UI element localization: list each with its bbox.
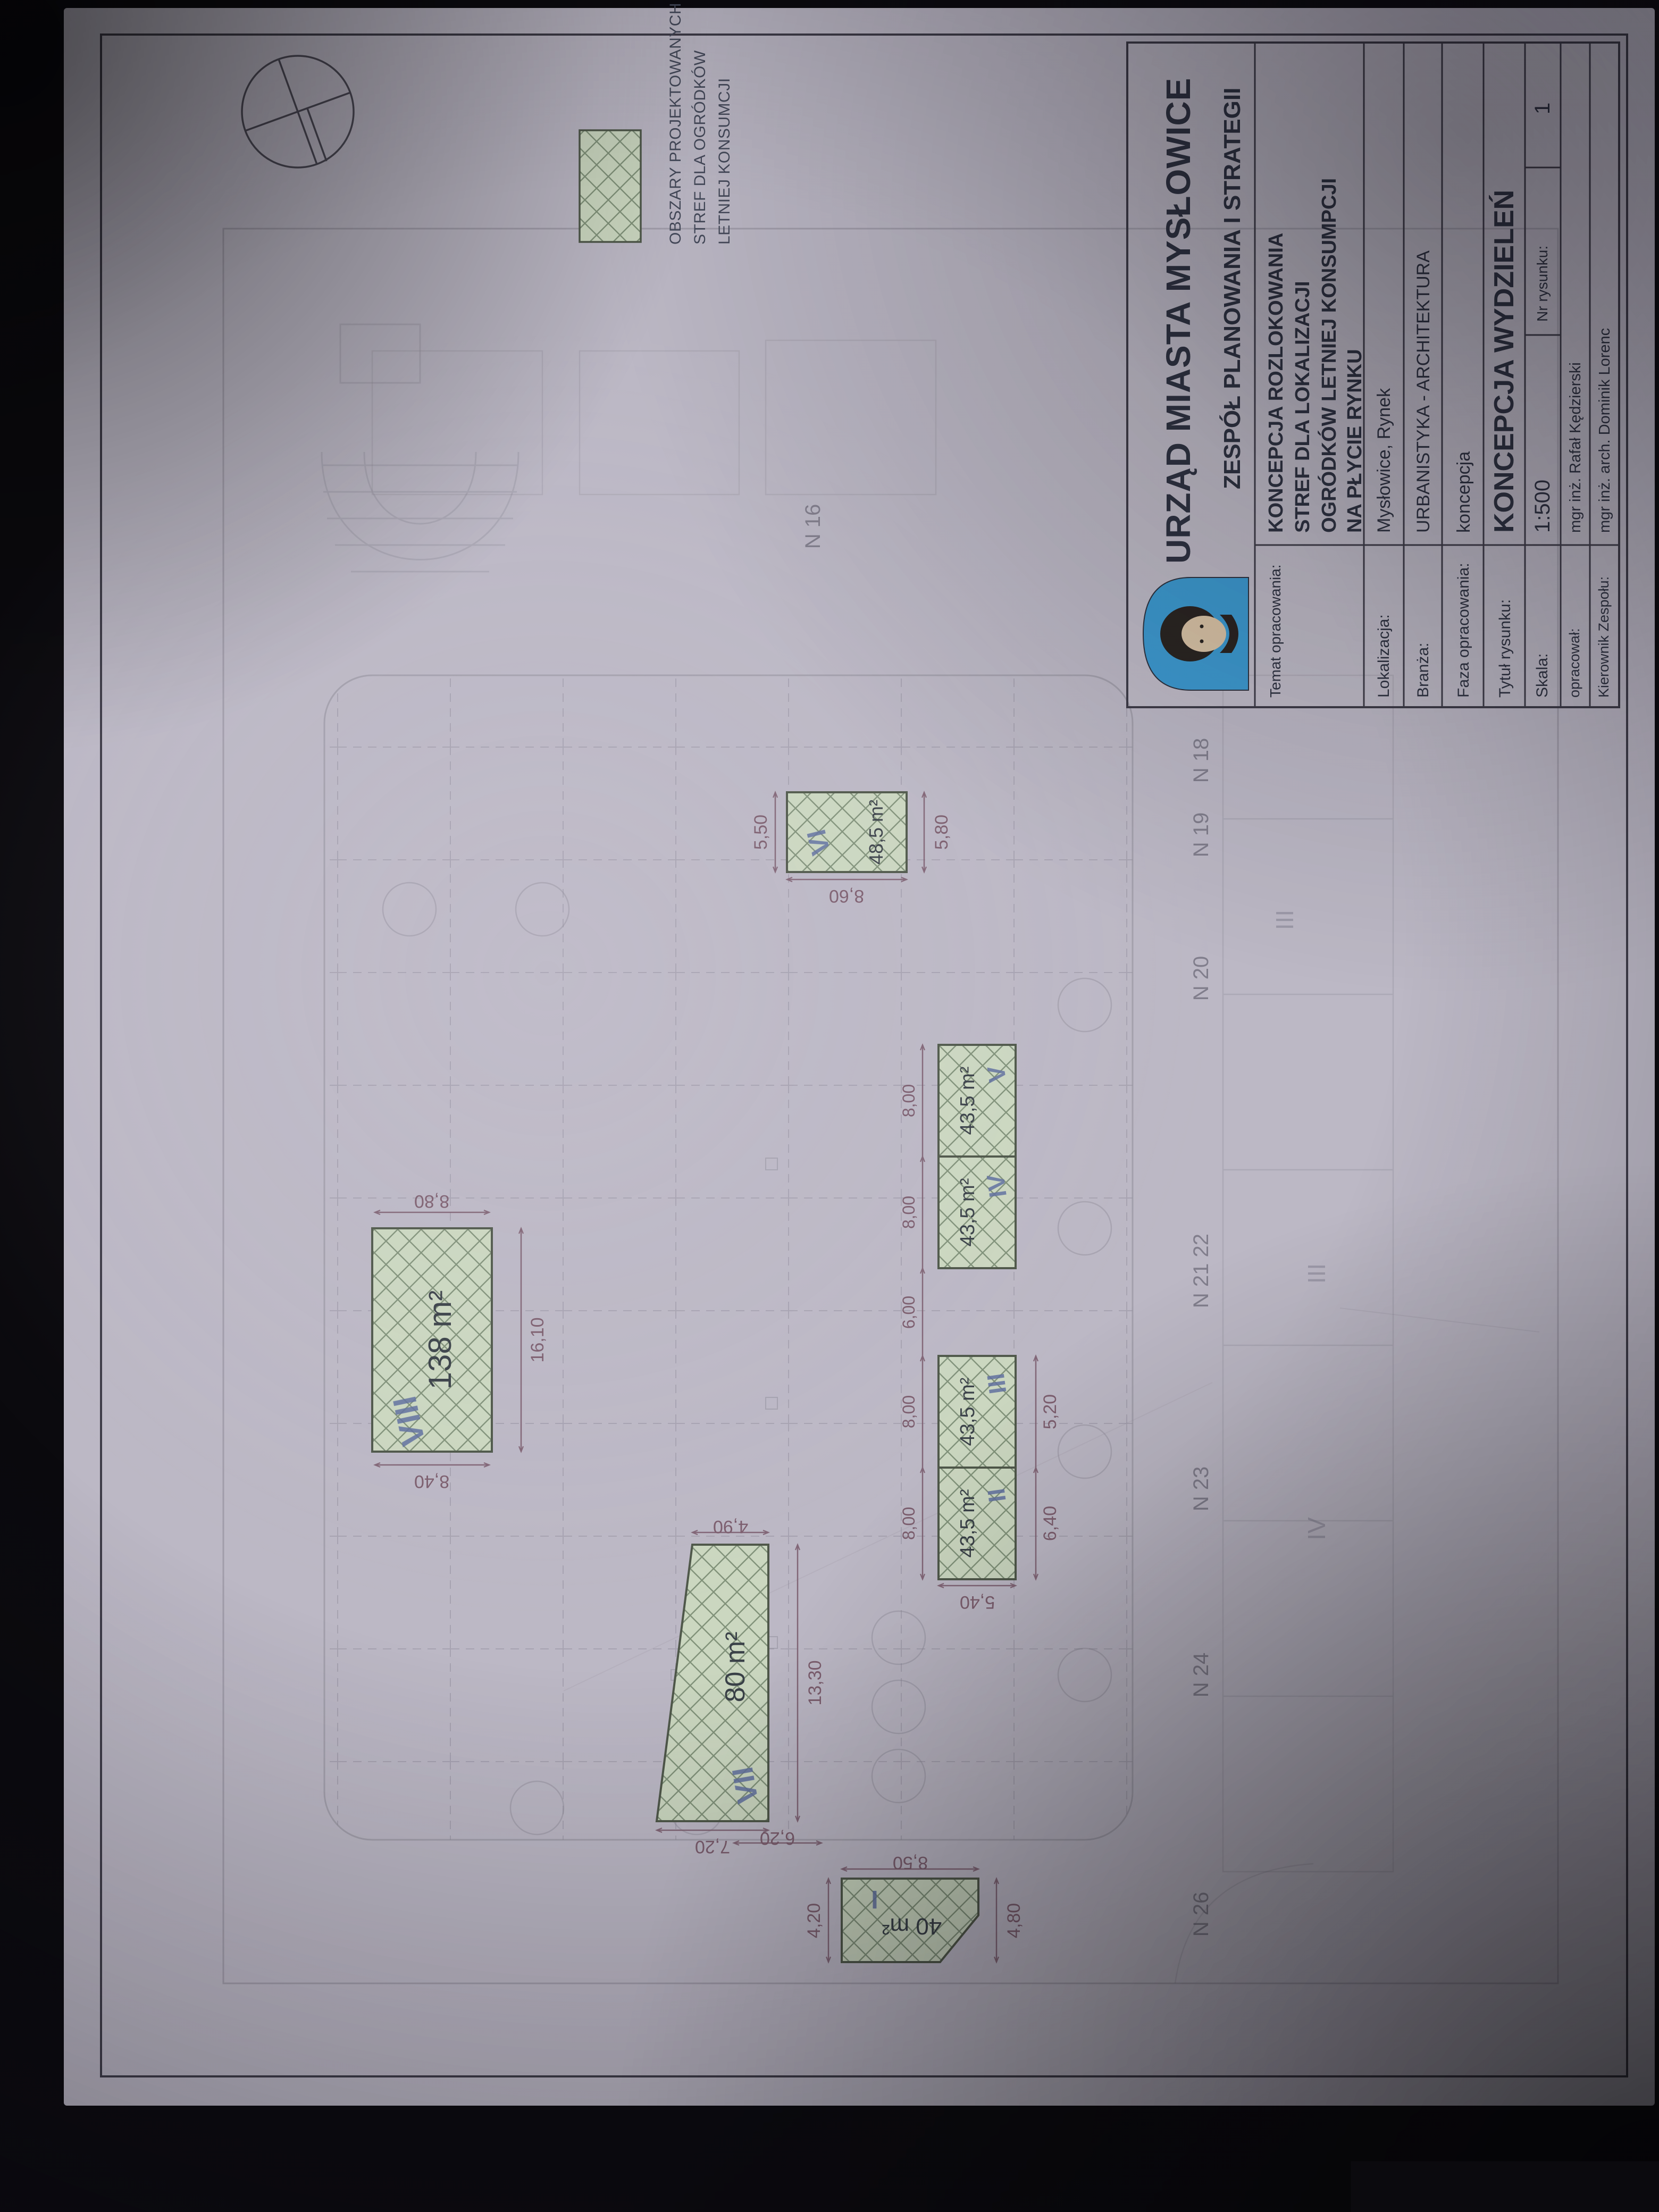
field-label: Faza opracowania: <box>1455 563 1472 698</box>
dim-label: 7,20 <box>695 1837 730 1857</box>
plot-label: N 23 <box>1189 1467 1213 1512</box>
dim-label: 8,00 <box>899 1507 918 1540</box>
dim-label: 4,80 <box>1004 1903 1024 1938</box>
dim-label: 16,10 <box>527 1317 548 1362</box>
subject-line: STREF DLA LOKALIZACJI <box>1292 281 1314 533</box>
faint-numeral: III <box>1303 1263 1330 1284</box>
dim-label: 4,20 <box>804 1903 824 1938</box>
zone-numeral: III <box>982 1372 1012 1396</box>
zone-area-label: 43,5 m² <box>957 1178 979 1247</box>
site-plan-drawing: N 26 N 24 N 23 N 21 22 N 20 N 19 N 18 N … <box>0 0 1659 2212</box>
legend-line: LETNIEJ KONSUMCJI <box>716 78 733 245</box>
subject-line: OGRÓDKÓW LETNIEJ KONSUMPCJI <box>1317 178 1340 533</box>
dim-label: 5,20 <box>1040 1394 1060 1429</box>
field-value: mgr inż. Rafał Kędzierski <box>1567 362 1584 533</box>
field-label: opracował: <box>1566 628 1582 698</box>
zone-area-label: 138 m² <box>422 1291 458 1390</box>
faint-numeral: III <box>1271 910 1298 930</box>
zone-area-label: 43,5 m² <box>957 1489 979 1558</box>
dim-label: 4,90 <box>713 1516 748 1537</box>
plot-label: N 18 <box>1189 738 1213 783</box>
dim-label: 6,20 <box>760 1828 795 1848</box>
dim-label: 8,00 <box>899 1084 918 1117</box>
field-value: URBANISTYKA - ARCHITEKTURA <box>1413 250 1434 533</box>
drawing-number: 1 <box>1531 103 1554 114</box>
field-label: Skala: <box>1534 653 1551 698</box>
field-value: koncepcja <box>1454 451 1474 533</box>
subject-line: NA PŁYCIE RYNKU <box>1344 349 1366 533</box>
plot-label: N 20 <box>1189 956 1213 1001</box>
dim-label: 5,80 <box>932 815 952 850</box>
dim-label: 8,00 <box>899 1196 918 1229</box>
plot-label: N 16 <box>801 504 825 549</box>
dim-label: 8,50 <box>893 1853 928 1873</box>
photographed-drawing: N 26 N 24 N 23 N 21 22 N 20 N 19 N 18 N … <box>0 0 1659 2212</box>
team-name: ZESPÓŁ PLANOWANIA I STRATEGII <box>1219 88 1245 489</box>
dim-label: 8,80 <box>414 1191 449 1211</box>
legend-line: OBSZARY PROJEKTOWANYCH <box>667 3 684 245</box>
dim-label: 6,40 <box>1040 1506 1060 1541</box>
rotated-drawing-canvas: N 26 N 24 N 23 N 21 22 N 20 N 19 N 18 N … <box>0 0 1659 2212</box>
dim-label: 6,00 <box>899 1296 918 1329</box>
zone-numeral: VII <box>725 1764 765 1806</box>
zone-area-label: 80 m² <box>720 1632 751 1703</box>
legend-line: STREF DLA OGRÓDKÓW <box>691 50 709 245</box>
dim-label: 8,60 <box>829 886 864 906</box>
zone-numeral: IV <box>981 1172 1012 1200</box>
field-value: mgr inż. arch. Dominik Lorenc <box>1596 328 1613 533</box>
dim-label: 8,40 <box>414 1471 449 1492</box>
field-label: Temat opracowania: <box>1267 564 1284 698</box>
field-value: Mysłowice, Rynek <box>1374 388 1394 533</box>
zone-area-label: 40 m² <box>882 1913 942 1939</box>
dim-label: 5,50 <box>751 815 771 850</box>
plot-label: N 26 <box>1189 1892 1213 1937</box>
coat-of-arms-logo <box>1143 577 1249 690</box>
dim-label: 5,40 <box>960 1592 995 1612</box>
field-label: Nr rysunku: <box>1534 246 1551 322</box>
field-label: Kierownik Zespołu: <box>1596 576 1612 698</box>
zone-area-label: 48,5 m² <box>865 800 887 865</box>
plot-label: N 19 <box>1189 812 1213 858</box>
field-label: Branża: <box>1414 643 1432 698</box>
plot-label: N 21 22 <box>1189 1234 1213 1308</box>
faint-numeral: IV <box>1303 1517 1330 1540</box>
drawing-title: KONCEPCJA WYDZIELEŃ <box>1489 190 1520 533</box>
dim-label: 8,00 <box>899 1395 918 1428</box>
zone-vi <box>787 792 907 872</box>
scale-value: 1:500 <box>1531 480 1554 533</box>
dim-label: 13,30 <box>805 1660 825 1705</box>
zone-area-label: 43,5 m² <box>957 1067 979 1135</box>
field-label: Tytuł rysunku: <box>1496 599 1514 698</box>
zone-area-label: 43,5 m² <box>957 1378 979 1446</box>
subject-line: KONCEPCJA ROZLOKOWANIA <box>1265 233 1287 533</box>
field-label: Lokalizacja: <box>1375 614 1393 698</box>
office-name: URZĄD MIASTA MYSŁOWICE <box>1159 78 1197 564</box>
plot-label: N 24 <box>1189 1653 1213 1698</box>
title-block: URZĄD MIASTA MYSŁOWICE ZESPÓŁ PLANOWANIA… <box>1127 43 1619 707</box>
zone-numeral: I <box>871 1885 878 1913</box>
